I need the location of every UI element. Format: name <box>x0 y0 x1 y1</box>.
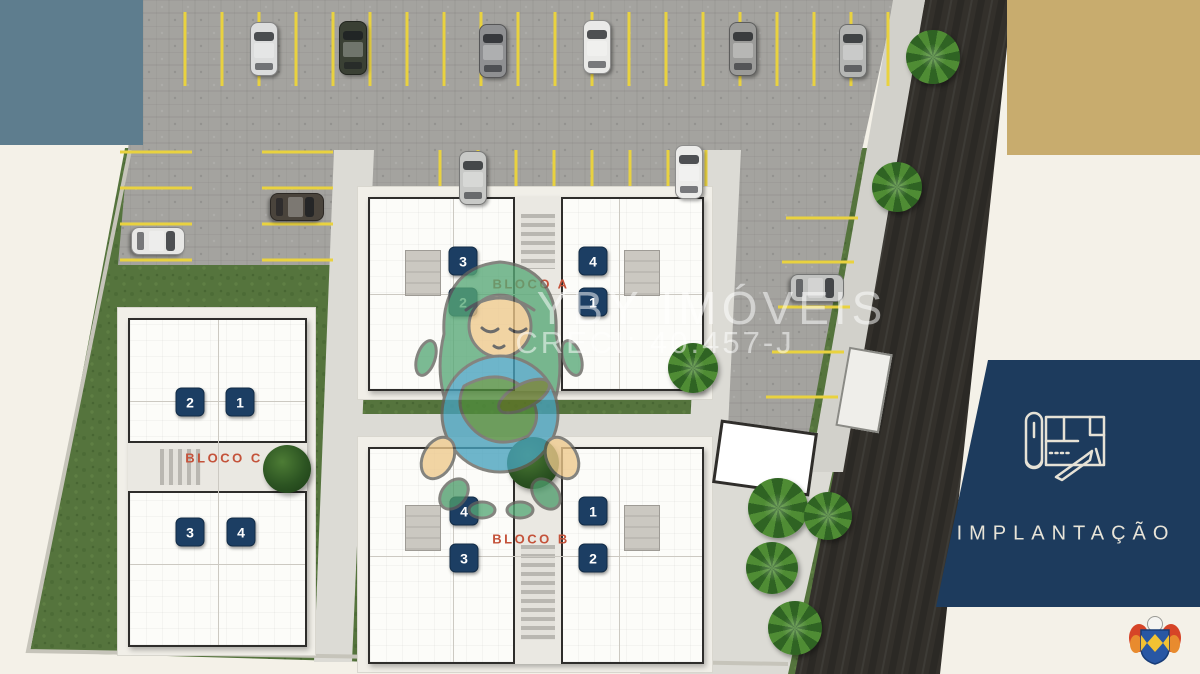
car-windshield <box>305 197 314 217</box>
car <box>479 24 507 78</box>
car <box>839 24 867 78</box>
car-roof <box>587 41 607 56</box>
car-rear-window <box>484 65 502 72</box>
palm-tree <box>668 343 718 393</box>
car-rear-window <box>734 63 752 70</box>
bloco-c-unit-4: 4 <box>227 518 256 547</box>
car-windshield <box>679 155 699 164</box>
car-roof <box>679 166 699 181</box>
bloco-a-unit-1: 1 <box>579 288 608 317</box>
car-roof <box>149 231 164 251</box>
bloco-c-unit-2: 2 <box>176 388 205 417</box>
car-rear-window <box>796 279 803 297</box>
palm-tree <box>906 30 960 84</box>
palm-tree <box>746 542 798 594</box>
panel-title: IMPLANTAÇÃO <box>957 523 1176 546</box>
bloco-c-unit-divider <box>218 320 219 645</box>
car <box>675 145 703 199</box>
tree <box>263 445 311 493</box>
car-roof <box>808 278 823 298</box>
decor-rect-tan <box>1007 0 1200 155</box>
bloco-c-unit-3: 3 <box>176 518 205 547</box>
patio-table <box>624 250 660 296</box>
patio-table <box>624 505 660 551</box>
yby-crest-logo <box>1128 614 1182 666</box>
bloco-a-unit-2: 2 <box>449 288 478 317</box>
bloco-a-label: BLOCO A <box>493 277 570 292</box>
car-windshield <box>166 231 175 251</box>
bloco-b-unit-2: 2 <box>579 544 608 573</box>
car-rear-window <box>255 63 273 70</box>
car-rear-window <box>464 192 482 199</box>
car-roof <box>843 45 863 60</box>
car-rear-window <box>344 62 362 69</box>
utility-shed <box>835 347 892 433</box>
car-roof <box>254 43 274 58</box>
bloco-c-label: BLOCO C <box>185 451 262 466</box>
car-rear-window <box>137 232 144 250</box>
car <box>459 151 487 205</box>
car <box>131 227 185 255</box>
car-rear-window <box>276 198 283 216</box>
bloco-b-unit-4: 4 <box>450 497 479 526</box>
palm-tree <box>804 492 852 540</box>
bloco-b-unit-1: 1 <box>579 497 608 526</box>
tree <box>507 437 559 489</box>
car <box>339 21 367 75</box>
car-windshield <box>825 278 834 298</box>
car-windshield <box>343 31 363 40</box>
bloco-b-label: BLOCO B <box>492 532 569 547</box>
bloco-b-unit-divider <box>370 556 702 557</box>
car-rear-window <box>680 186 698 193</box>
car-windshield <box>254 32 274 41</box>
patio-table <box>405 250 441 296</box>
car-windshield <box>463 161 483 170</box>
car-rear-window <box>588 61 606 68</box>
bloco-a-unit-3: 3 <box>449 247 478 276</box>
car <box>583 20 611 74</box>
site-plan-canvas: BLOCO A3421BLOCO B4132BLOCO C2134 <box>0 0 1200 674</box>
bloco-c-unit-1: 1 <box>226 388 255 417</box>
car-rear-window <box>844 65 862 72</box>
car-windshield <box>733 32 753 41</box>
decor-rect-bluegray <box>0 0 143 145</box>
car-windshield <box>483 34 503 43</box>
bloco-a-unit-4: 4 <box>579 247 608 276</box>
car <box>729 22 757 76</box>
palm-tree <box>872 162 922 212</box>
car-roof <box>463 172 483 187</box>
car-roof <box>483 45 503 60</box>
palm-tree <box>768 601 822 655</box>
blueprint-icon <box>1016 405 1116 493</box>
car-windshield <box>587 30 607 39</box>
patio-table <box>405 505 441 551</box>
bloco-b-stairs <box>521 545 555 640</box>
palm-tree <box>748 478 808 538</box>
car <box>250 22 278 76</box>
car-roof <box>733 43 753 58</box>
car-roof <box>343 42 363 57</box>
car <box>270 193 324 221</box>
bloco-b-unit-3: 3 <box>450 544 479 573</box>
car-windshield <box>843 34 863 43</box>
car <box>790 274 844 302</box>
car-roof <box>288 197 303 217</box>
bloco-a-stairs <box>521 214 555 268</box>
